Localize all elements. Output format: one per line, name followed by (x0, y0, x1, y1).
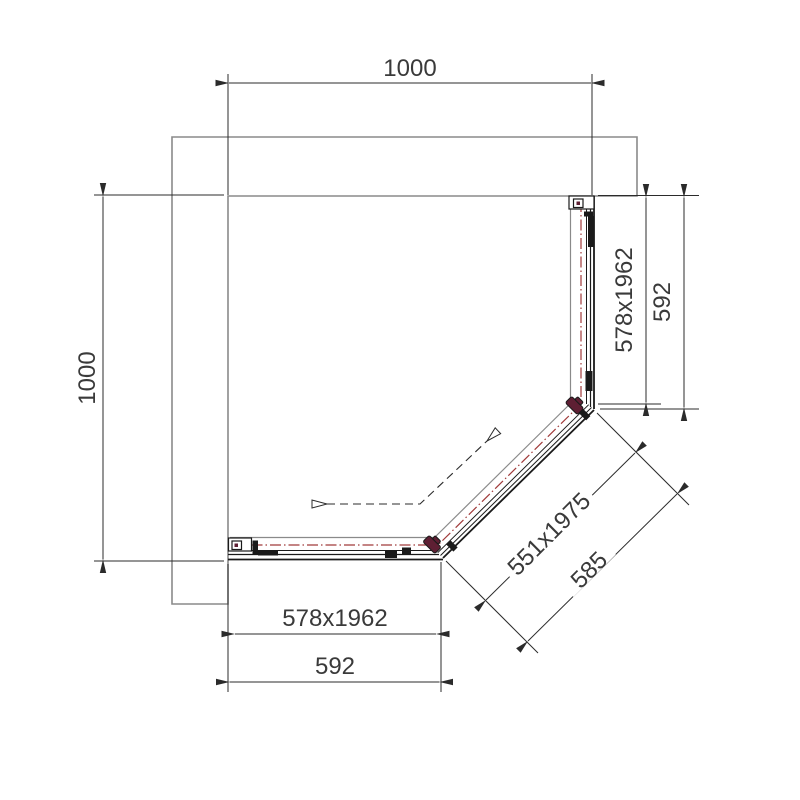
drawing-canvas: 1000 1000 578x1962 592 551x1975 (0, 0, 800, 800)
door-swing-arrow-icon (327, 441, 487, 504)
dim-bottom-panel: 578x1962 592 (228, 562, 441, 692)
dim-label-bottom-glass: 578x1962 (282, 605, 387, 632)
dim-label-right-glass: 578x1962 (611, 247, 638, 352)
diagonal-door (431, 398, 594, 558)
dim-label-top-width: 1000 (383, 55, 436, 82)
dim-right-panel: 578x1962 592 (598, 196, 699, 410)
dim-label-left-height: 1000 (74, 351, 101, 404)
dim-diagonal-door: 551x1975 585 (446, 413, 689, 653)
dim-left-height: 1000 (74, 195, 224, 561)
dim-label-bottom-overall: 592 (315, 653, 355, 680)
dim-top-width: 1000 (228, 55, 592, 195)
right-fixed-panel (569, 196, 594, 409)
dim-label-right-overall: 592 (649, 282, 676, 322)
technical-drawing: 1000 1000 578x1962 592 551x1975 (0, 0, 800, 800)
bottom-fixed-panel (228, 538, 443, 560)
